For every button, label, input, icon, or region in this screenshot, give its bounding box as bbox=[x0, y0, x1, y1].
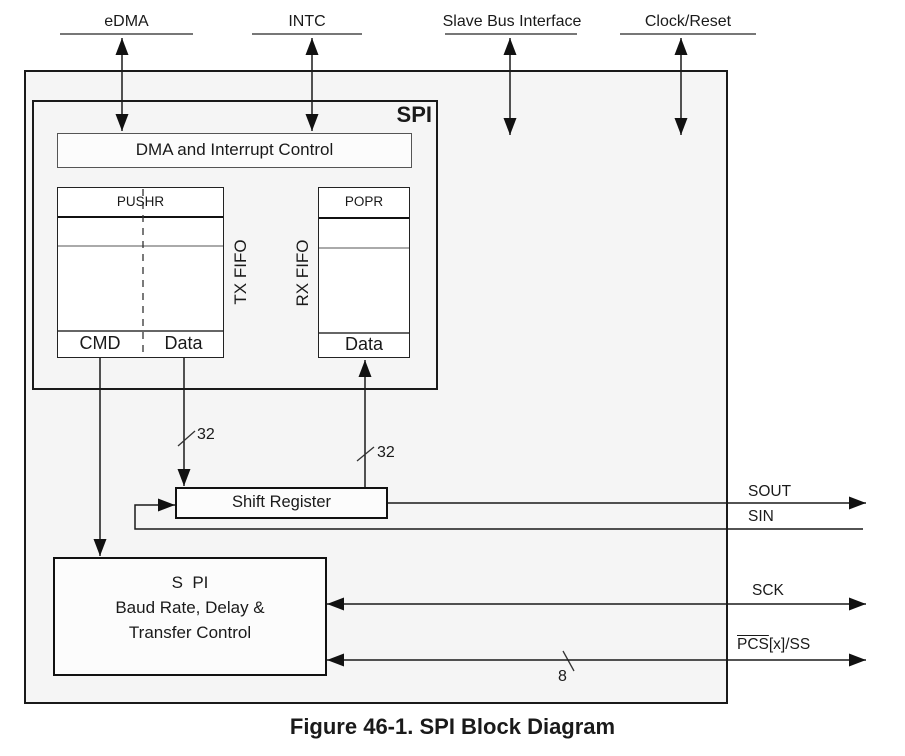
pcs-rest-part: [x]/SS bbox=[769, 636, 810, 653]
cmd-field-label: CMD bbox=[57, 333, 143, 354]
rx-bus-width: 32 bbox=[377, 444, 395, 462]
pcs-bus-width: 8 bbox=[558, 668, 567, 686]
baud-control-line2: Baud Rate, Delay & bbox=[53, 595, 327, 620]
rx-data-field-label: Data bbox=[318, 334, 410, 355]
port-label-slave-bus: Slave Bus Interface bbox=[437, 13, 587, 31]
port-label-clock-reset: Clock/Reset bbox=[620, 13, 756, 31]
sck-signal-label: SCK bbox=[752, 582, 784, 600]
baud-control-line3: Transfer Control bbox=[53, 620, 327, 645]
sout-signal-label: SOUT bbox=[748, 483, 791, 501]
tx-data-field-label: Data bbox=[143, 333, 224, 354]
baud-control-text: S PI Baud Rate, Delay & Transfer Control bbox=[53, 570, 327, 645]
dma-interrupt-control-label: DMA and Interrupt Control bbox=[57, 140, 412, 160]
pushr-register-label: PUSHR bbox=[57, 194, 224, 209]
port-label-edma: eDMA bbox=[60, 13, 193, 31]
rx-fifo-box bbox=[318, 187, 410, 358]
port-label-intc: INTC bbox=[252, 13, 362, 31]
spi-module-title: SPI bbox=[340, 102, 432, 128]
popr-register-label: POPR bbox=[318, 194, 410, 209]
baud-control-line1: S PI bbox=[53, 570, 327, 595]
tx-fifo-label: TX FIFO bbox=[231, 227, 251, 317]
spi-block-diagram: eDMA INTC Slave Bus Interface Clock/Rese… bbox=[0, 0, 905, 756]
shift-register-label: Shift Register bbox=[175, 493, 388, 512]
sin-signal-label: SIN bbox=[748, 508, 774, 526]
figure-caption: Figure 46-1. SPI Block Diagram bbox=[0, 714, 905, 740]
pcs-signal-label: PCS[x]/SS bbox=[737, 636, 810, 654]
tx-bus-width: 32 bbox=[197, 426, 215, 444]
rx-fifo-label: RX FIFO bbox=[293, 228, 313, 318]
pcs-overlined-part: PCS bbox=[737, 636, 769, 653]
